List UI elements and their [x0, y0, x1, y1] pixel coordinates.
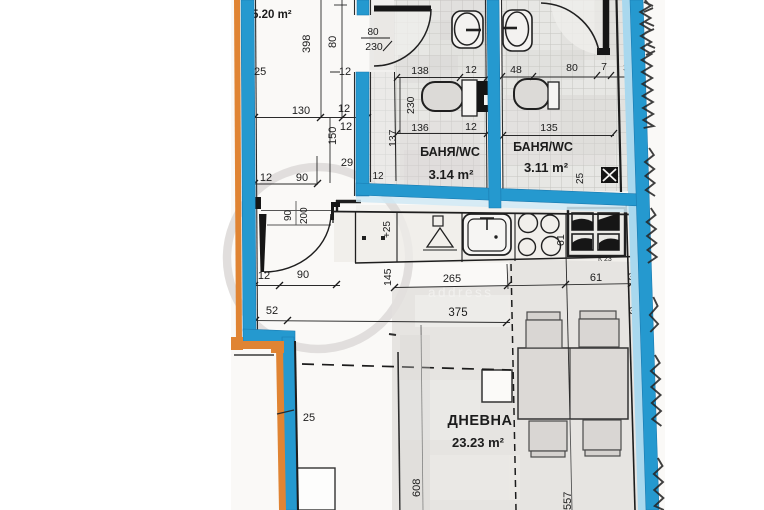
svg-text:52: 52 — [266, 305, 278, 317]
svg-text:29: 29 — [341, 157, 353, 169]
svg-text:150: 150 — [327, 127, 339, 145]
svg-text:12: 12 — [339, 66, 351, 78]
svg-text:90: 90 — [297, 269, 309, 281]
svg-text:12: 12 — [372, 171, 384, 182]
svg-text:БАНЯ/WC: БАНЯ/WC — [420, 145, 480, 159]
svg-text:145: 145 — [382, 268, 394, 286]
svg-text:12: 12 — [258, 270, 270, 282]
svg-text:12: 12 — [465, 64, 477, 76]
svg-text:230: 230 — [405, 96, 417, 114]
svg-text:3.11 m²: 3.11 m² — [524, 160, 569, 175]
svg-text:БАНЯ/WC: БАНЯ/WC — [513, 140, 573, 154]
svg-text:12: 12 — [338, 103, 350, 115]
svg-text:61: 61 — [555, 234, 567, 246]
svg-text:25: 25 — [303, 412, 315, 424]
svg-text:7: 7 — [601, 61, 607, 73]
svg-text:25: 25 — [575, 172, 586, 184]
svg-text:200: 200 — [299, 207, 310, 224]
svg-text:12: 12 — [260, 172, 272, 184]
svg-text:23.23 m²: 23.23 m² — [452, 435, 505, 450]
svg-text:12: 12 — [465, 121, 477, 133]
svg-text:48: 48 — [510, 64, 522, 76]
svg-text:265: 265 — [443, 273, 461, 285]
svg-text:3.14 m²: 3.14 m² — [429, 167, 474, 182]
svg-text:557: 557 — [562, 492, 574, 510]
svg-text:address: address — [428, 285, 494, 300]
svg-text:398: 398 — [301, 35, 313, 53]
svg-text:80: 80 — [367, 27, 379, 38]
svg-text:5.20 m²: 5.20 m² — [252, 9, 292, 21]
svg-text:130: 130 — [292, 105, 310, 117]
svg-text:25: 25 — [254, 66, 266, 78]
svg-text:137: 137 — [387, 129, 399, 147]
svg-text:+25: +25 — [382, 221, 393, 238]
svg-text:135: 135 — [540, 122, 558, 134]
svg-text:61: 61 — [590, 272, 602, 284]
svg-text:80: 80 — [327, 36, 339, 48]
svg-text:К 23: К 23 — [598, 256, 612, 263]
svg-text:80: 80 — [566, 62, 578, 74]
svg-text:608: 608 — [411, 479, 423, 497]
svg-text:90: 90 — [283, 209, 294, 221]
svg-text:138: 138 — [411, 65, 429, 77]
svg-text:ДНЕВНА: ДНЕВНА — [448, 413, 513, 429]
svg-text:375: 375 — [448, 307, 467, 319]
svg-text:230: 230 — [365, 41, 383, 53]
svg-text:12: 12 — [340, 121, 352, 133]
svg-text:136: 136 — [411, 122, 429, 134]
svg-text:90: 90 — [296, 172, 308, 184]
